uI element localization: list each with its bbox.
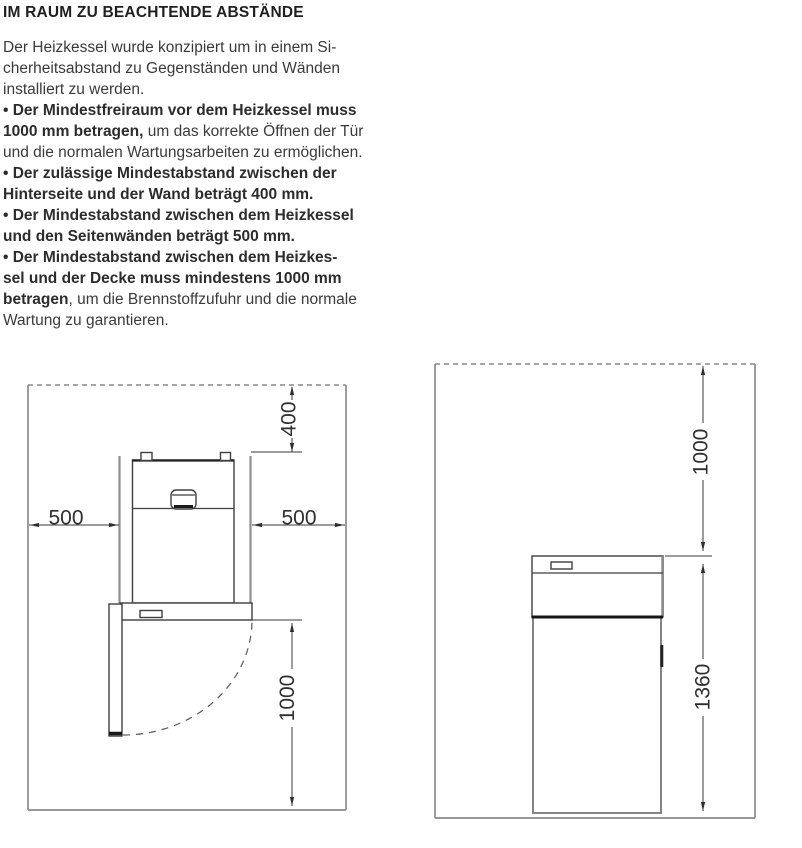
flue-connector: [171, 490, 196, 509]
control-panel-display: [551, 562, 572, 569]
front-panel-vent: [140, 611, 162, 618]
top-view-diagram: 400 500 500: [28, 385, 346, 810]
boiler-rear-tab-right: [221, 453, 231, 461]
dim-ceiling-label: 1000: [690, 429, 713, 476]
dim-front-label: 1000: [276, 675, 299, 722]
dim-side-left-label: 500: [48, 507, 83, 530]
dimension-side-right-500: 500: [252, 507, 345, 530]
boiler-rear-tab-left: [141, 453, 152, 461]
dim-height-label: 1360: [692, 664, 715, 711]
boiler-lower-body: [533, 617, 661, 813]
dimension-ceiling-1000: 1000: [665, 366, 713, 556]
dimension-front-1000: 1000: [252, 620, 302, 806]
dimension-side-left-500: 500: [29, 507, 119, 530]
boiler-top-view: [109, 453, 252, 737]
dimension-height-1360: 1360: [692, 564, 715, 811]
page-canvas: IM RAUM ZU BEACHTENDE ABSTÄNDE Der Heizk…: [0, 0, 802, 848]
dim-rear-label: 400: [278, 401, 301, 436]
dim-side-right-label: 500: [281, 507, 316, 530]
open-door: [109, 604, 122, 736]
dimension-rear-400: 400: [251, 386, 302, 452]
clearance-diagrams: 400 500 500: [0, 0, 802, 848]
side-view-diagram: 1000 1360: [435, 364, 755, 818]
boiler-side-view: [532, 556, 664, 813]
door-swing-arc: [123, 620, 252, 735]
